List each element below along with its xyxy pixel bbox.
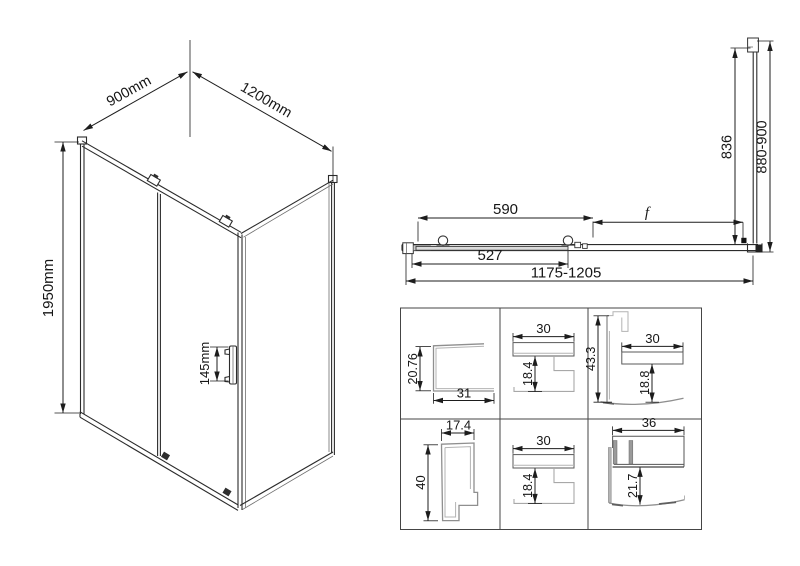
stile-width-label: 17.4 bbox=[446, 418, 471, 433]
door-handle bbox=[225, 346, 237, 384]
dim-depth-1200: 1200mm bbox=[193, 72, 334, 183]
bottom-guide-2 bbox=[222, 488, 231, 497]
height-label: 1950mm bbox=[40, 259, 57, 317]
isometric-view: 1950mm 900mm 1200mm 145mm bbox=[40, 40, 337, 510]
bottom-rail-height-label: 18.4 bbox=[521, 474, 535, 498]
wall-profile-plan-top bbox=[748, 38, 759, 52]
profile-cell-top-rail: 30 18.4 bbox=[513, 321, 574, 392]
profile-cell-wall: 20.76 31 bbox=[406, 344, 494, 404]
side-overall-label: 880-900 bbox=[755, 120, 771, 173]
profile-cell-stile: 17.4 40 bbox=[413, 418, 478, 521]
corner-bracket bbox=[756, 245, 763, 253]
dim-overall-width: 1175-1205 bbox=[406, 254, 753, 285]
plan-view: 590 f 527 1175-1205 836 bbox=[402, 38, 774, 285]
roller-plan-1 bbox=[437, 236, 450, 245]
corner-width-label: 30 bbox=[645, 331, 659, 346]
bottom-guide-1 bbox=[161, 452, 170, 461]
corner-inner-label: 18.8 bbox=[638, 371, 652, 395]
handle-plan bbox=[575, 242, 581, 247]
handle-label: 145mm bbox=[197, 342, 212, 385]
lower-width-label: 527 bbox=[477, 247, 502, 264]
profile-sections: 20.76 31 30 18.4 bbox=[401, 308, 702, 530]
top-rail-width-label: 30 bbox=[536, 321, 550, 336]
corner-height-label: 43.3 bbox=[584, 347, 598, 371]
top-rail-height-label: 18.4 bbox=[521, 362, 535, 386]
drawing-canvas: 1950mm 900mm 1200mm 145mm bbox=[0, 0, 800, 566]
depth-label: 1200mm bbox=[238, 80, 295, 122]
enclosure-structure bbox=[78, 137, 338, 510]
roller-carriage-2 bbox=[219, 213, 233, 227]
threshold-width-label: 36 bbox=[642, 415, 656, 430]
dim-height-1950: 1950mm bbox=[40, 142, 79, 413]
glass-width-label: 590 bbox=[493, 201, 518, 218]
wall-height-label: 20.76 bbox=[406, 353, 420, 384]
roller-carriage-1 bbox=[147, 172, 161, 186]
wall-width-label: 31 bbox=[457, 386, 471, 401]
bottom-rail-width-label: 30 bbox=[536, 433, 550, 448]
profile-cell-corner: 30 43.3 18.8 bbox=[584, 312, 684, 405]
stile-height-label: 40 bbox=[413, 475, 428, 489]
dim-836: 836 bbox=[720, 48, 751, 245]
fixed-label: f bbox=[645, 205, 651, 221]
dim-handle-145: 145mm bbox=[197, 342, 229, 385]
roller-plan-2 bbox=[562, 236, 575, 245]
plan-structure bbox=[402, 38, 762, 254]
threshold-height-label: 21.7 bbox=[626, 474, 640, 498]
dim-590: 590 bbox=[418, 201, 593, 242]
profile-cell-threshold: 36 21.7 bbox=[608, 415, 684, 506]
corner-block bbox=[741, 238, 746, 243]
wall-profile-plan bbox=[403, 243, 414, 254]
technical-drawing-page: 1950mm 900mm 1200mm 145mm bbox=[0, 0, 800, 566]
profile-cell-bottom-rail: 30 18.4 bbox=[513, 433, 574, 504]
dim-f: f bbox=[593, 205, 743, 239]
side-glass-label: 836 bbox=[720, 135, 736, 159]
dim-width-900: 900mm bbox=[84, 40, 191, 137]
overall-width-label: 1175-1205 bbox=[531, 265, 602, 282]
